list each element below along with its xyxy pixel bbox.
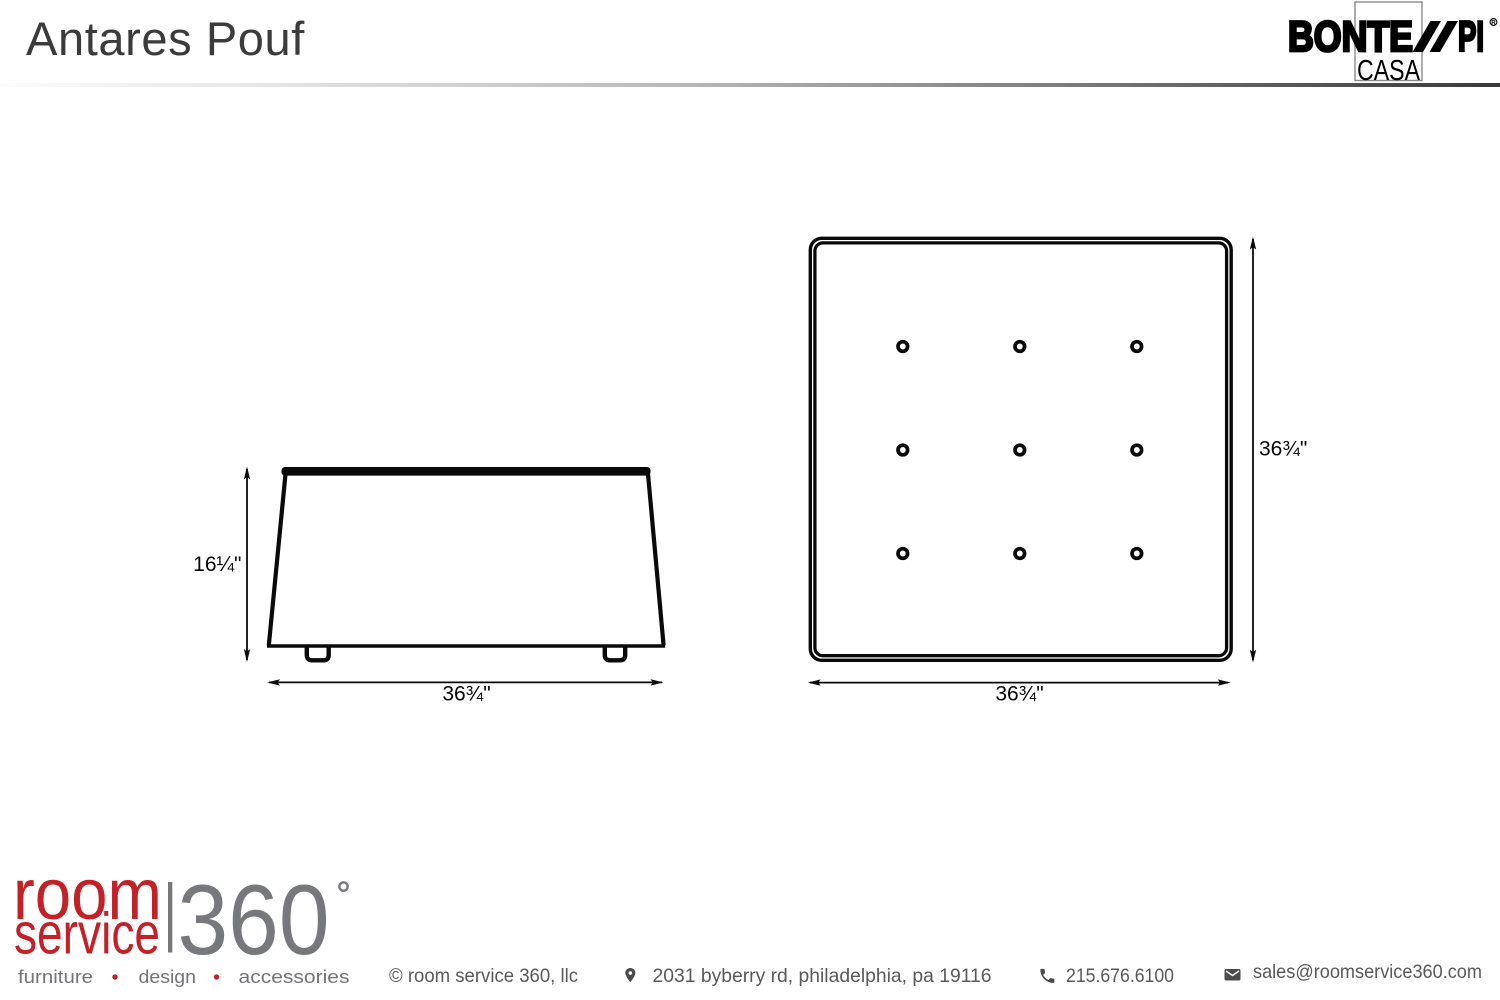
svg-text:36¾": 36¾" — [995, 683, 1043, 706]
svg-text:215.676.6100: 215.676.6100 — [1066, 965, 1174, 987]
svg-text:2031 byberry rd, philadelphia,: 2031 byberry rd, philadelphia, pa 19116 — [653, 965, 992, 987]
svg-text:36¾": 36¾" — [1259, 438, 1307, 461]
svg-text:16¼": 16¼" — [193, 553, 241, 576]
svg-text:36¾": 36¾" — [442, 683, 490, 706]
svg-text:sales@roomservice360.com: sales@roomservice360.com — [1253, 961, 1482, 983]
svg-text:© room service 360, llc: © room service 360, llc — [389, 965, 578, 987]
